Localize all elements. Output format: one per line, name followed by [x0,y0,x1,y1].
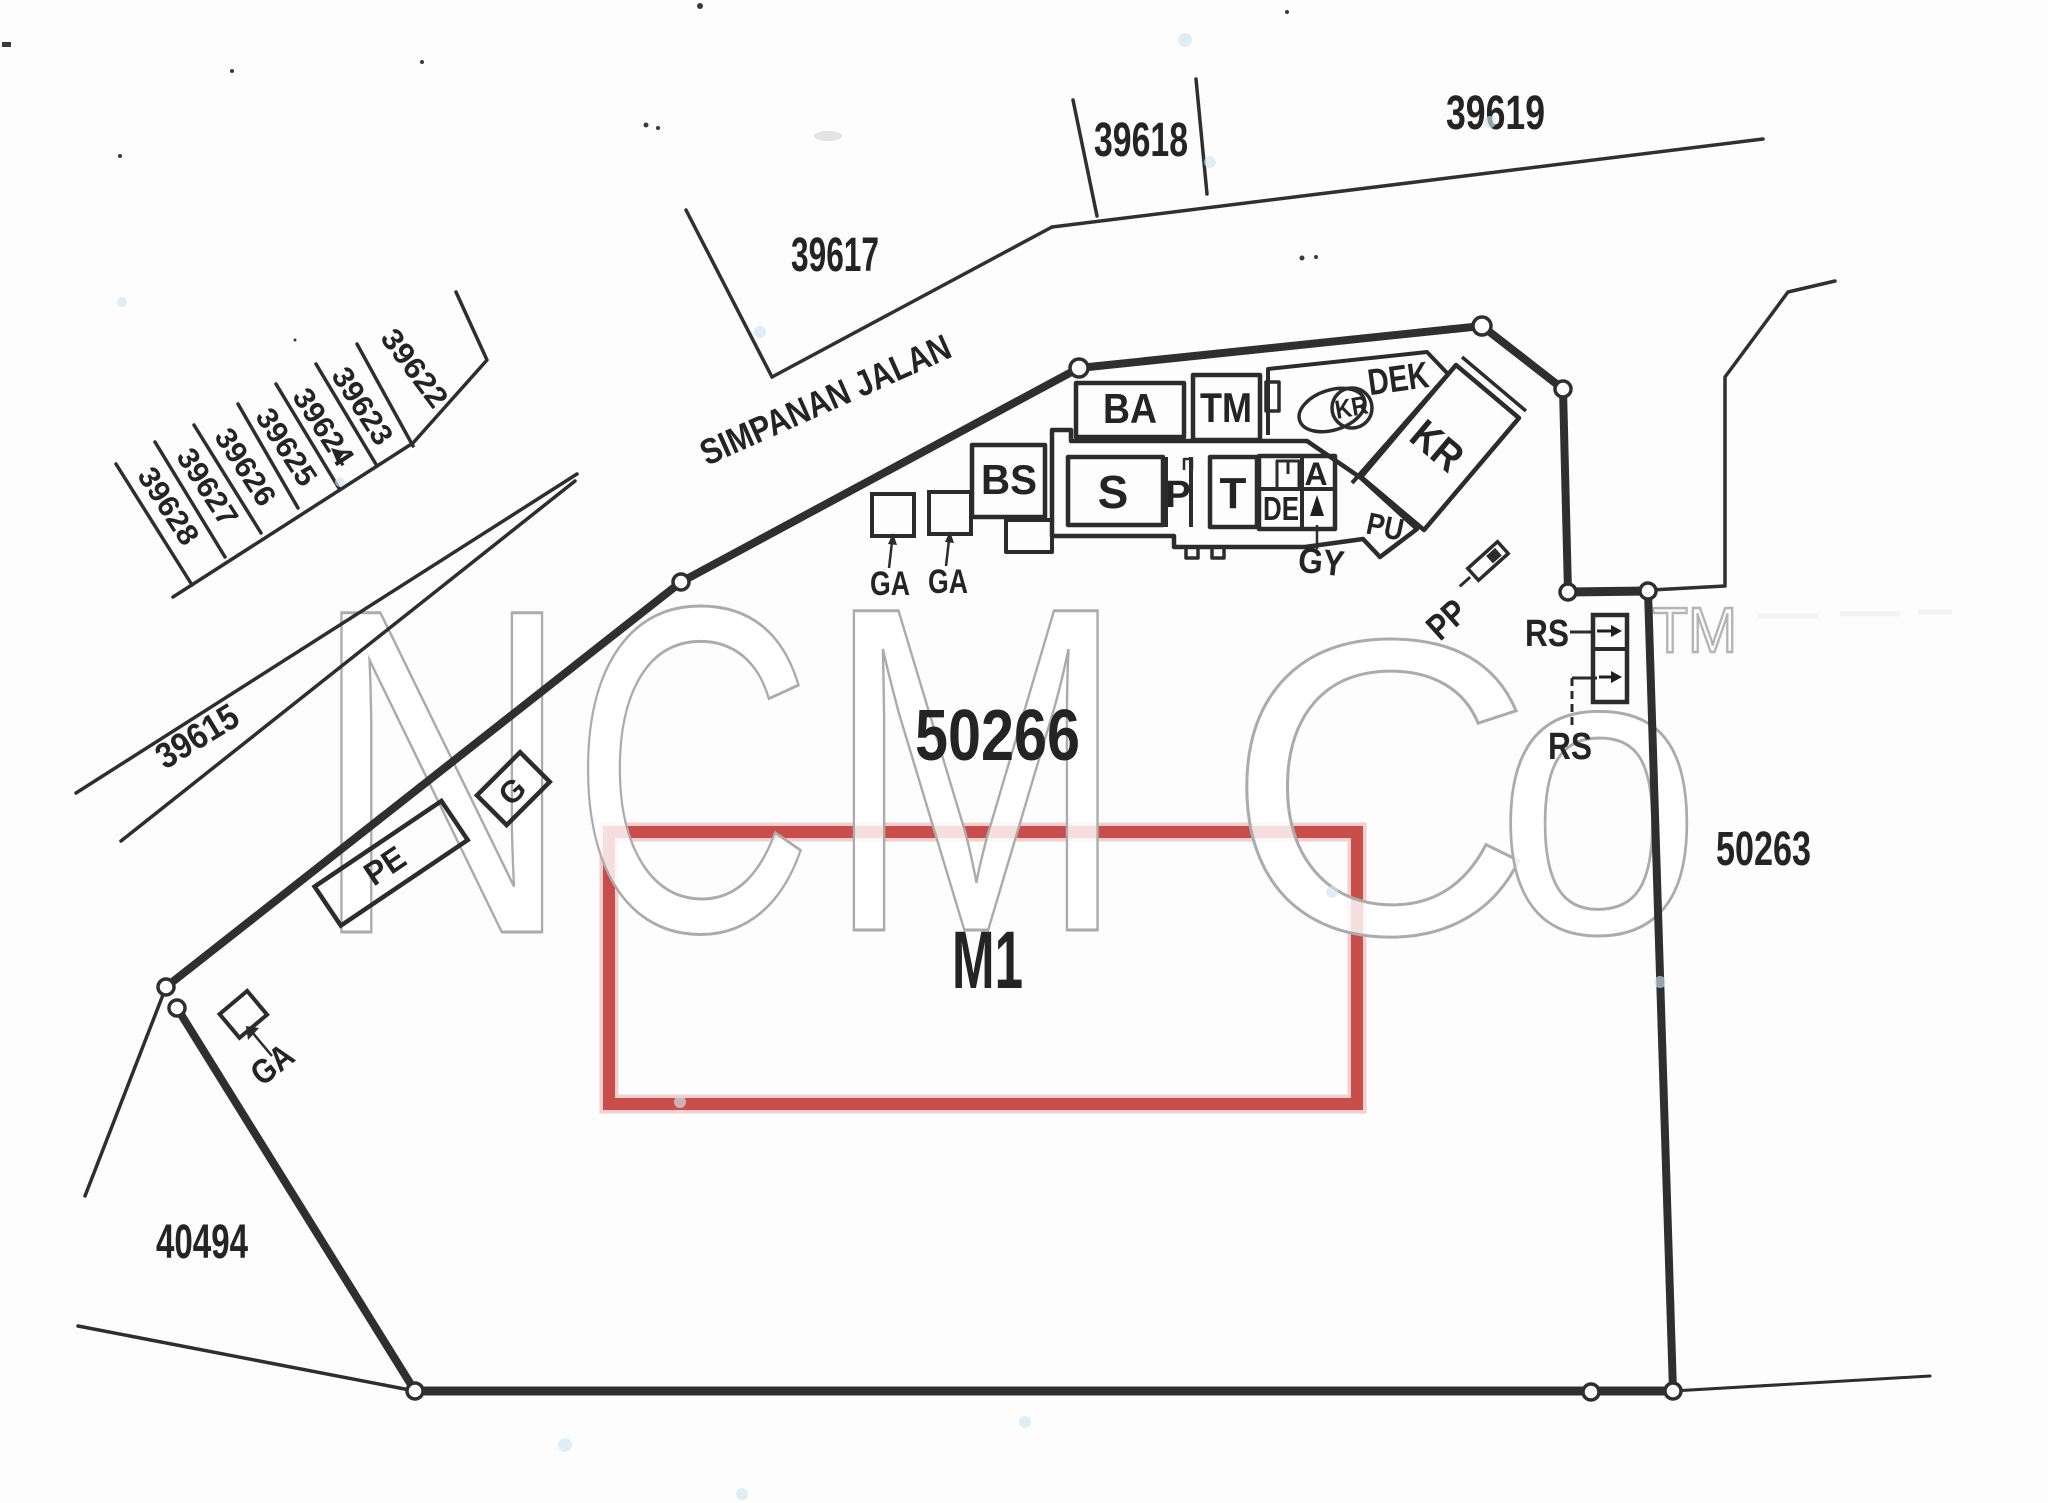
svg-text:GY: GY [1296,539,1346,585]
svg-text:A: A [1304,456,1327,492]
svg-text:DE: DE [1263,490,1299,527]
svg-text:BA: BA [1103,385,1157,432]
svg-text:C: C [1225,553,1535,1023]
svg-text:TM: TM [1200,384,1252,431]
svg-text:C: C [571,509,813,1028]
svg-text:TM: TM [1652,595,1737,667]
svg-text:GA: GA [870,565,910,603]
svg-text:T: T [1220,469,1247,518]
svg-text:DEK: DEK [1365,354,1431,403]
svg-text:39618: 39618 [1094,114,1188,167]
svg-text:GA: GA [928,563,968,601]
svg-text:50266: 50266 [915,696,1080,776]
svg-text:39619: 39619 [1446,87,1545,140]
svg-text:RS: RS [1548,726,1592,768]
svg-text:RS: RS [1525,613,1569,655]
svg-text:40494: 40494 [156,1216,248,1269]
svg-text:P: P [1165,474,1190,516]
svg-text:KR: KR [1333,389,1371,424]
svg-text:M1: M1 [952,915,1023,1006]
svg-text:39617: 39617 [791,229,879,282]
svg-text:BS: BS [981,456,1037,503]
svg-text:50263: 50263 [1716,823,1811,876]
svg-text:S: S [1098,466,1129,518]
